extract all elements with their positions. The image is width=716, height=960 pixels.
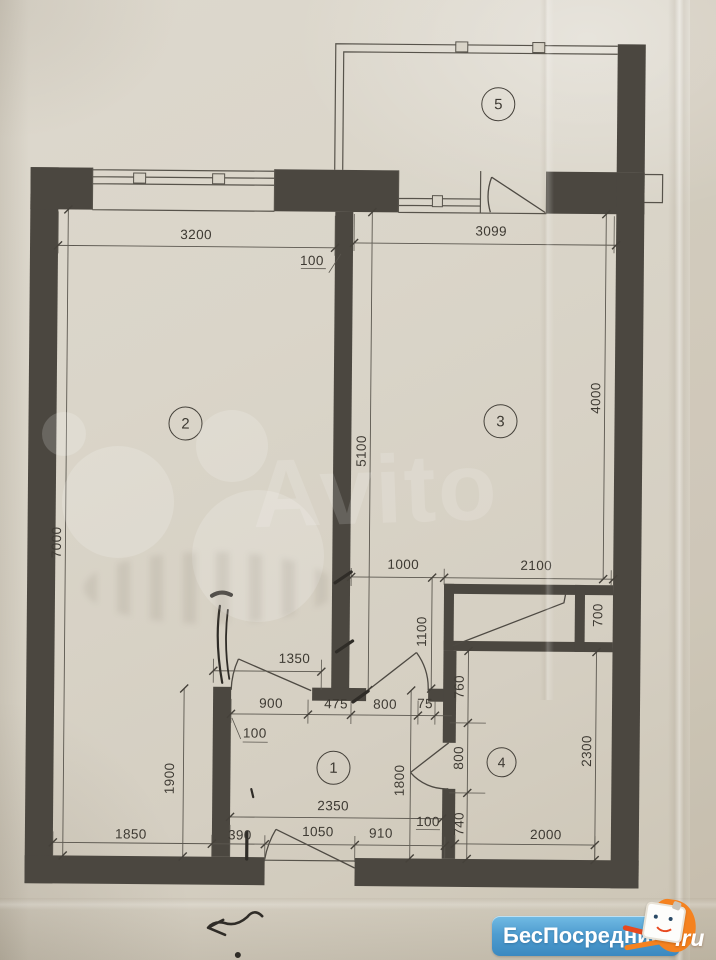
- pen-dot: [235, 952, 241, 958]
- room-label-3: 3: [483, 404, 517, 438]
- mascot-smile: [653, 916, 677, 933]
- dim-4000: 4000: [588, 382, 603, 414]
- dim-800-left: 800: [451, 746, 466, 770]
- pen-apostrophe: [251, 789, 253, 797]
- dim-800-top: 800: [373, 697, 397, 712]
- plan-linework: [0, 0, 716, 960]
- dim-5100: 5100: [354, 435, 369, 467]
- room-number: 3: [496, 413, 504, 430]
- dim-1800: 1800: [392, 764, 407, 796]
- dim-2300: 2300: [579, 735, 594, 767]
- dim-1050: 1050: [302, 824, 334, 839]
- mascot-clip: [672, 901, 682, 911]
- balcony-door: [488, 177, 546, 212]
- dim-100-top: 100: [300, 253, 324, 268]
- dim-75: 75: [417, 696, 433, 711]
- dim-760: 760: [452, 675, 467, 699]
- room-label-2: 2: [168, 406, 202, 440]
- dim-390: 390: [228, 827, 252, 842]
- room4-door: [410, 742, 448, 788]
- room-label-5: 5: [481, 87, 515, 121]
- room-label-4: 4: [486, 747, 516, 777]
- logo-tld-text: .ru: [675, 925, 704, 952]
- dim-100-hall: 100: [243, 726, 267, 741]
- dim-2000: 2000: [530, 827, 562, 842]
- room-number: 5: [494, 96, 502, 113]
- pen-arrow: [208, 912, 262, 935]
- dim-1900: 1900: [162, 762, 177, 794]
- room-label-1: 1: [316, 751, 350, 785]
- room-number: 4: [498, 754, 506, 770]
- dim-3200: 3200: [180, 227, 212, 242]
- dim-1350: 1350: [279, 651, 311, 666]
- dim-7000: 7000: [49, 526, 64, 558]
- closet-diagonal: [453, 591, 566, 647]
- dim-100-bottom: 100: [416, 814, 440, 829]
- dim-2350: 2350: [317, 798, 349, 813]
- dim-700: 700: [590, 603, 605, 627]
- besposrednika-logo: БесПосредника .ru: [492, 912, 716, 960]
- dim-2100: 2100: [520, 558, 552, 573]
- pen-blob: [212, 592, 231, 595]
- pen-stroke-2: [226, 610, 230, 679]
- dim-1850: 1850: [115, 826, 147, 841]
- thin-lines: [87, 42, 664, 864]
- dim-1100: 1100: [414, 616, 429, 647]
- dim-900: 900: [259, 696, 283, 711]
- floorplan-drawing: 1 2 3 4 5 3200 3099 100 5100 4000 7000 1…: [0, 0, 716, 960]
- dim-475: 475: [324, 696, 348, 711]
- dim-1000: 1000: [387, 557, 419, 572]
- dim-740: 740: [451, 812, 466, 836]
- room3-door: [368, 652, 428, 691]
- floorplan-photo: 1 2 3 4 5 3200 3099 100 5100 4000 7000 1…: [0, 0, 716, 960]
- room-number: 1: [329, 759, 337, 776]
- room-number: 2: [181, 415, 189, 432]
- dim-3099: 3099: [475, 224, 507, 239]
- dim-910: 910: [369, 826, 393, 841]
